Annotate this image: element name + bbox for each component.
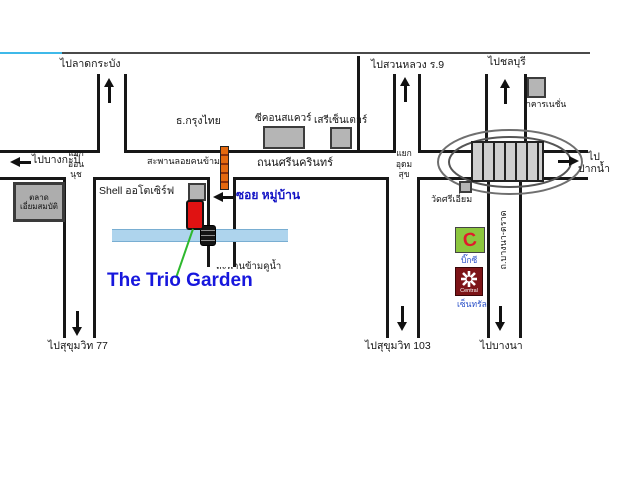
label-shell-station: Shell ออโตเซิร์ฟ: [99, 185, 174, 197]
label-to-chonburi: ไปชลบุรี: [488, 56, 526, 68]
label-central: เซ็นทรัล: [457, 299, 487, 309]
label-to-sukhumvit-77: ไปสุขุมวิท 77: [48, 340, 108, 352]
top-border-cyan-segment: [0, 52, 62, 54]
market-label-line1: ตลาด: [29, 193, 49, 203]
down-arrow-sukhumvit103-icon: [397, 306, 407, 331]
road-line-extra: [357, 56, 360, 153]
nation-building-marker: [527, 77, 546, 98]
label-bangna-trat-road: ถ.บางนา-ตราด: [497, 195, 509, 285]
label-wat-sri-iam: วัดศรีเอี่ยม: [431, 194, 472, 204]
label-nation-building: อาคารเนชั่น: [521, 99, 566, 109]
label-onnut-junction: แยก อ่อน นุช: [62, 148, 90, 180]
big-c-marker: C: [455, 227, 485, 253]
up-arrow-lat-krabang-icon: [104, 78, 114, 103]
market-label-line2: เอี่ยมสมบัติ: [20, 202, 58, 212]
wat-sri-iam-marker: [459, 181, 472, 193]
top-border-line: [62, 52, 590, 54]
overpass-bridge: [471, 141, 544, 182]
up-arrow-suan-luang-icon: [400, 77, 410, 102]
road-soi-muban: [207, 177, 236, 267]
label-soi-mu-ban: ซอย หมู่บ้าน: [236, 189, 300, 201]
seacon-square-building: [263, 126, 305, 149]
label-to-bang-na: ไปบางนา: [480, 340, 523, 352]
left-arrow-bang-kapi-icon: [10, 157, 31, 167]
map-canvas: ตลาด เอี่ยมสมบัติ C Central: [0, 0, 640, 480]
shell-station-marker: [186, 200, 204, 230]
label-seacon-square: ซีคอนสแควร์: [255, 113, 312, 125]
label-to-sukhumvit-103: ไปสุขุมวิท 103: [365, 340, 431, 352]
big-c-logo: C: [462, 230, 478, 251]
label-pedestrian-bridge: สะพานลอยคนข้าม: [147, 156, 220, 166]
left-arrow-soi-icon: [213, 192, 234, 202]
shell-shop-building: [188, 183, 206, 201]
down-arrow-bang-na-icon: [495, 306, 505, 331]
up-arrow-chonburi-icon: [500, 79, 510, 104]
label-krungthai-bank: ธ.กรุงไทย: [176, 115, 221, 127]
down-arrow-sukhumvit77-icon: [72, 311, 82, 336]
label-srinakarin-road: ถนนศรีนครินทร์: [257, 157, 333, 169]
label-to-lat-krabang: ไปลาดกระบัง: [60, 58, 121, 70]
label-project-name: The Trio Garden: [107, 275, 253, 287]
central-flower-icon: [460, 270, 478, 288]
label-big-c: บิ๊กซี: [461, 255, 477, 265]
label-udomsuk-junction: แยก อุดม สุข: [391, 148, 417, 180]
central-marker: Central: [455, 267, 483, 296]
label-to-suan-luang: ไปสวนหลวง ร.9: [371, 59, 444, 71]
seri-center-building: [330, 127, 352, 149]
iam-sombat-market-building: ตลาด เอี่ยมสมบัติ: [13, 182, 65, 222]
label-to-pak-nam: ไป ปากน้ำ: [572, 151, 616, 175]
central-logo-text: Central: [460, 288, 478, 294]
pedestrian-bridge-marker: [220, 146, 229, 190]
